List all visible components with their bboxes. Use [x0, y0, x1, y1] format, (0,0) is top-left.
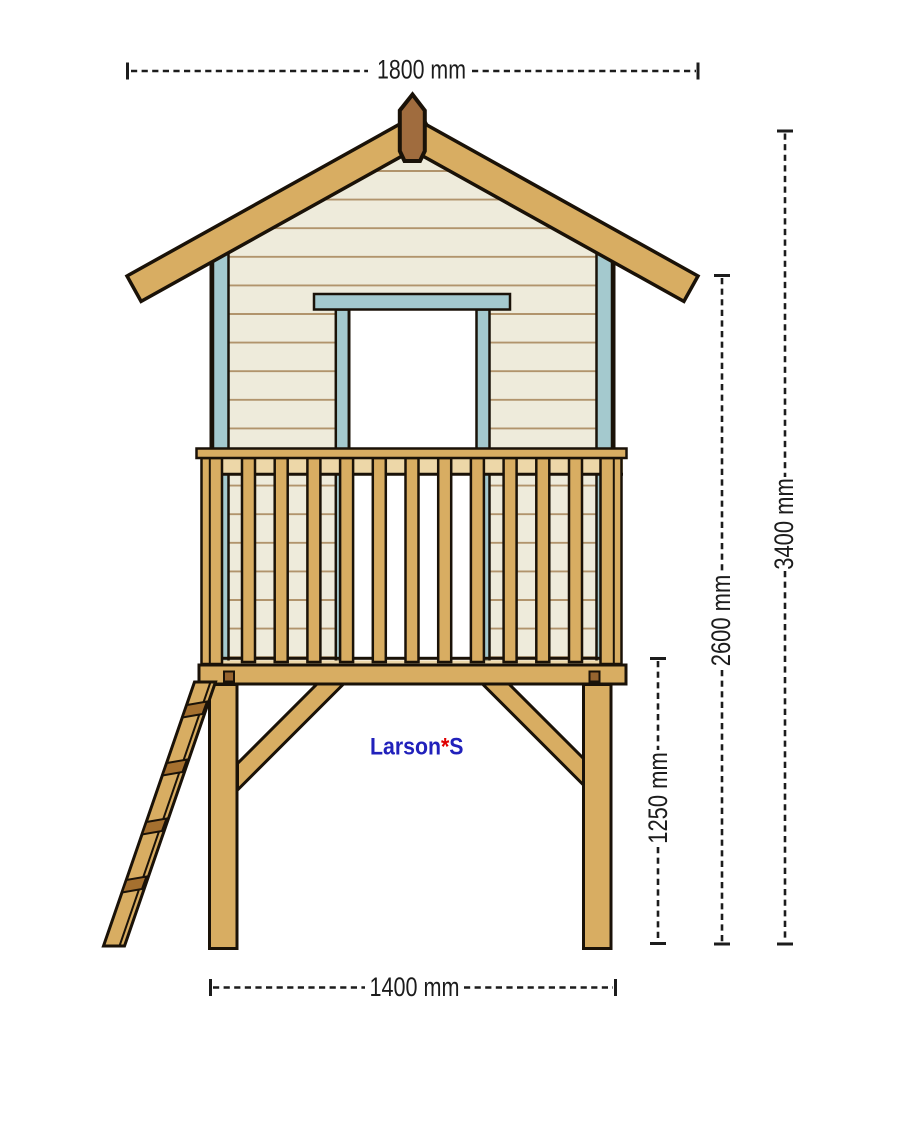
svg-text:2600 mm: 2600 mm [706, 575, 736, 667]
svg-text:1800 mm: 1800 mm [377, 55, 466, 85]
svg-text:Larson*S: Larson*S [370, 734, 464, 761]
svg-text:1400 mm: 1400 mm [370, 972, 460, 1002]
svg-text:1250 mm: 1250 mm [643, 752, 673, 844]
svg-text:3400 mm: 3400 mm [769, 478, 799, 570]
